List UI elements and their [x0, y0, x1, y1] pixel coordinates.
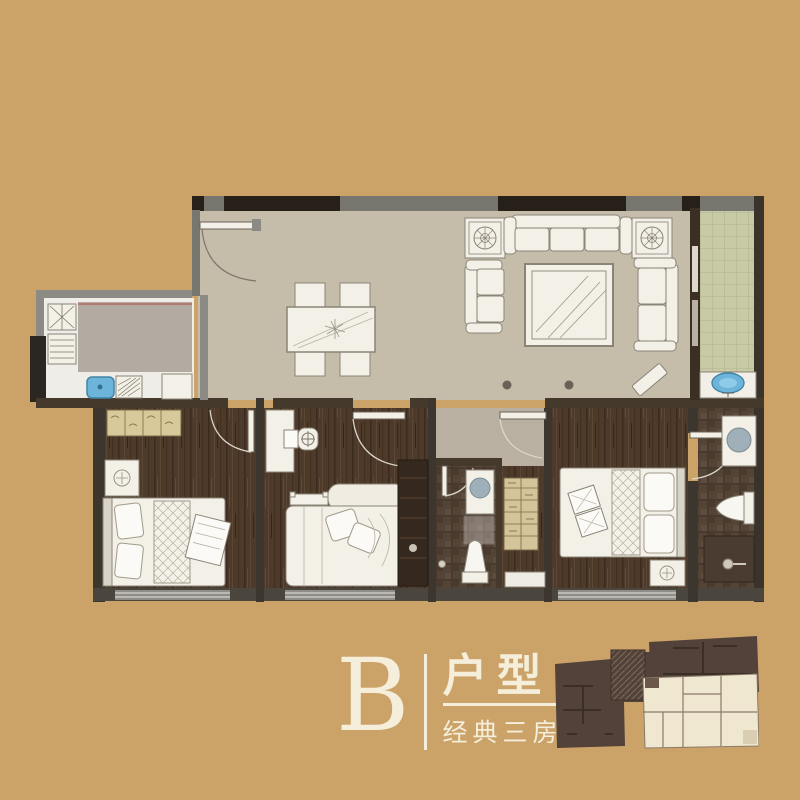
branding-block: B 户型 经典三房 — [336, 648, 563, 758]
hall-table — [505, 572, 545, 587]
laundry-balcony-floor — [700, 210, 756, 398]
kitchen-sink-icon — [87, 377, 114, 398]
loveseat-left — [465, 260, 504, 333]
floor-drain — [439, 561, 446, 568]
sink-icon — [466, 470, 494, 514]
cooktop-icon — [48, 304, 76, 330]
side-table-left — [465, 218, 505, 258]
kitchen-appliance-icon — [48, 334, 76, 364]
branding-divider — [424, 654, 427, 750]
dining-chair — [340, 283, 370, 309]
sofa-main — [504, 215, 632, 254]
dining-chair — [295, 283, 325, 309]
poster-background: B 户型 经典三房 — [0, 0, 800, 800]
dining-chair — [295, 350, 325, 376]
unit-subtitle: 经典三房 — [443, 713, 563, 749]
dining-table — [287, 307, 375, 352]
floor-lamp — [565, 381, 574, 390]
minimap-unit-highlight — [643, 674, 759, 748]
stove-icon — [116, 376, 142, 398]
shower-icon — [704, 536, 754, 582]
laundry-counter — [700, 372, 756, 398]
kitchen-cabinet — [162, 374, 192, 399]
building-minimap — [553, 634, 759, 752]
wardrobe — [107, 410, 181, 436]
dining-chair — [340, 350, 370, 376]
bench — [290, 492, 328, 505]
unit-letter: B — [336, 648, 424, 744]
storage-shelf — [504, 478, 538, 550]
wardrobe-dark — [398, 460, 428, 586]
side-table-right — [632, 218, 672, 258]
window-master-bedroom — [558, 590, 676, 600]
floor-lamp — [503, 381, 512, 390]
nightstand — [105, 460, 139, 496]
nightstand — [650, 560, 685, 586]
title-underline — [443, 703, 561, 706]
desk-chair — [298, 428, 318, 450]
coffee-table — [525, 264, 613, 346]
window-bedroom-2 — [285, 590, 395, 600]
shower-glass — [464, 516, 494, 544]
floorplan — [28, 188, 773, 613]
bed — [560, 468, 685, 557]
window-bedroom-1 — [115, 590, 230, 600]
sink-icon — [722, 416, 756, 466]
unit-title: 户型 — [443, 652, 563, 700]
bed — [103, 498, 231, 586]
desk — [266, 410, 298, 472]
